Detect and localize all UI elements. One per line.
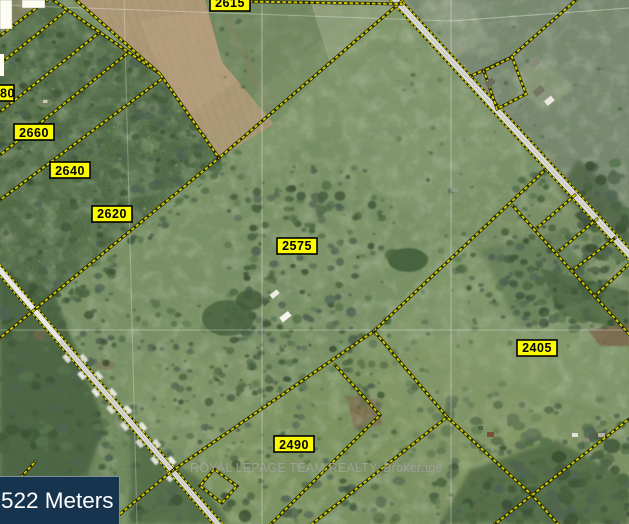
svg-text:2640: 2640 bbox=[55, 164, 85, 178]
svg-text:2575: 2575 bbox=[282, 239, 312, 253]
svg-text:2405: 2405 bbox=[522, 341, 552, 355]
svg-text:2660: 2660 bbox=[19, 126, 49, 140]
svg-text:2680: 2680 bbox=[0, 87, 15, 101]
svg-text:2490: 2490 bbox=[279, 438, 309, 452]
svg-text:2615: 2615 bbox=[215, 0, 245, 10]
svg-text:2620: 2620 bbox=[97, 207, 127, 221]
svg-text:ROYAL LEPAGE TEAM REALTY, Brok: ROYAL LEPAGE TEAM REALTY, Brokerage bbox=[190, 461, 443, 475]
